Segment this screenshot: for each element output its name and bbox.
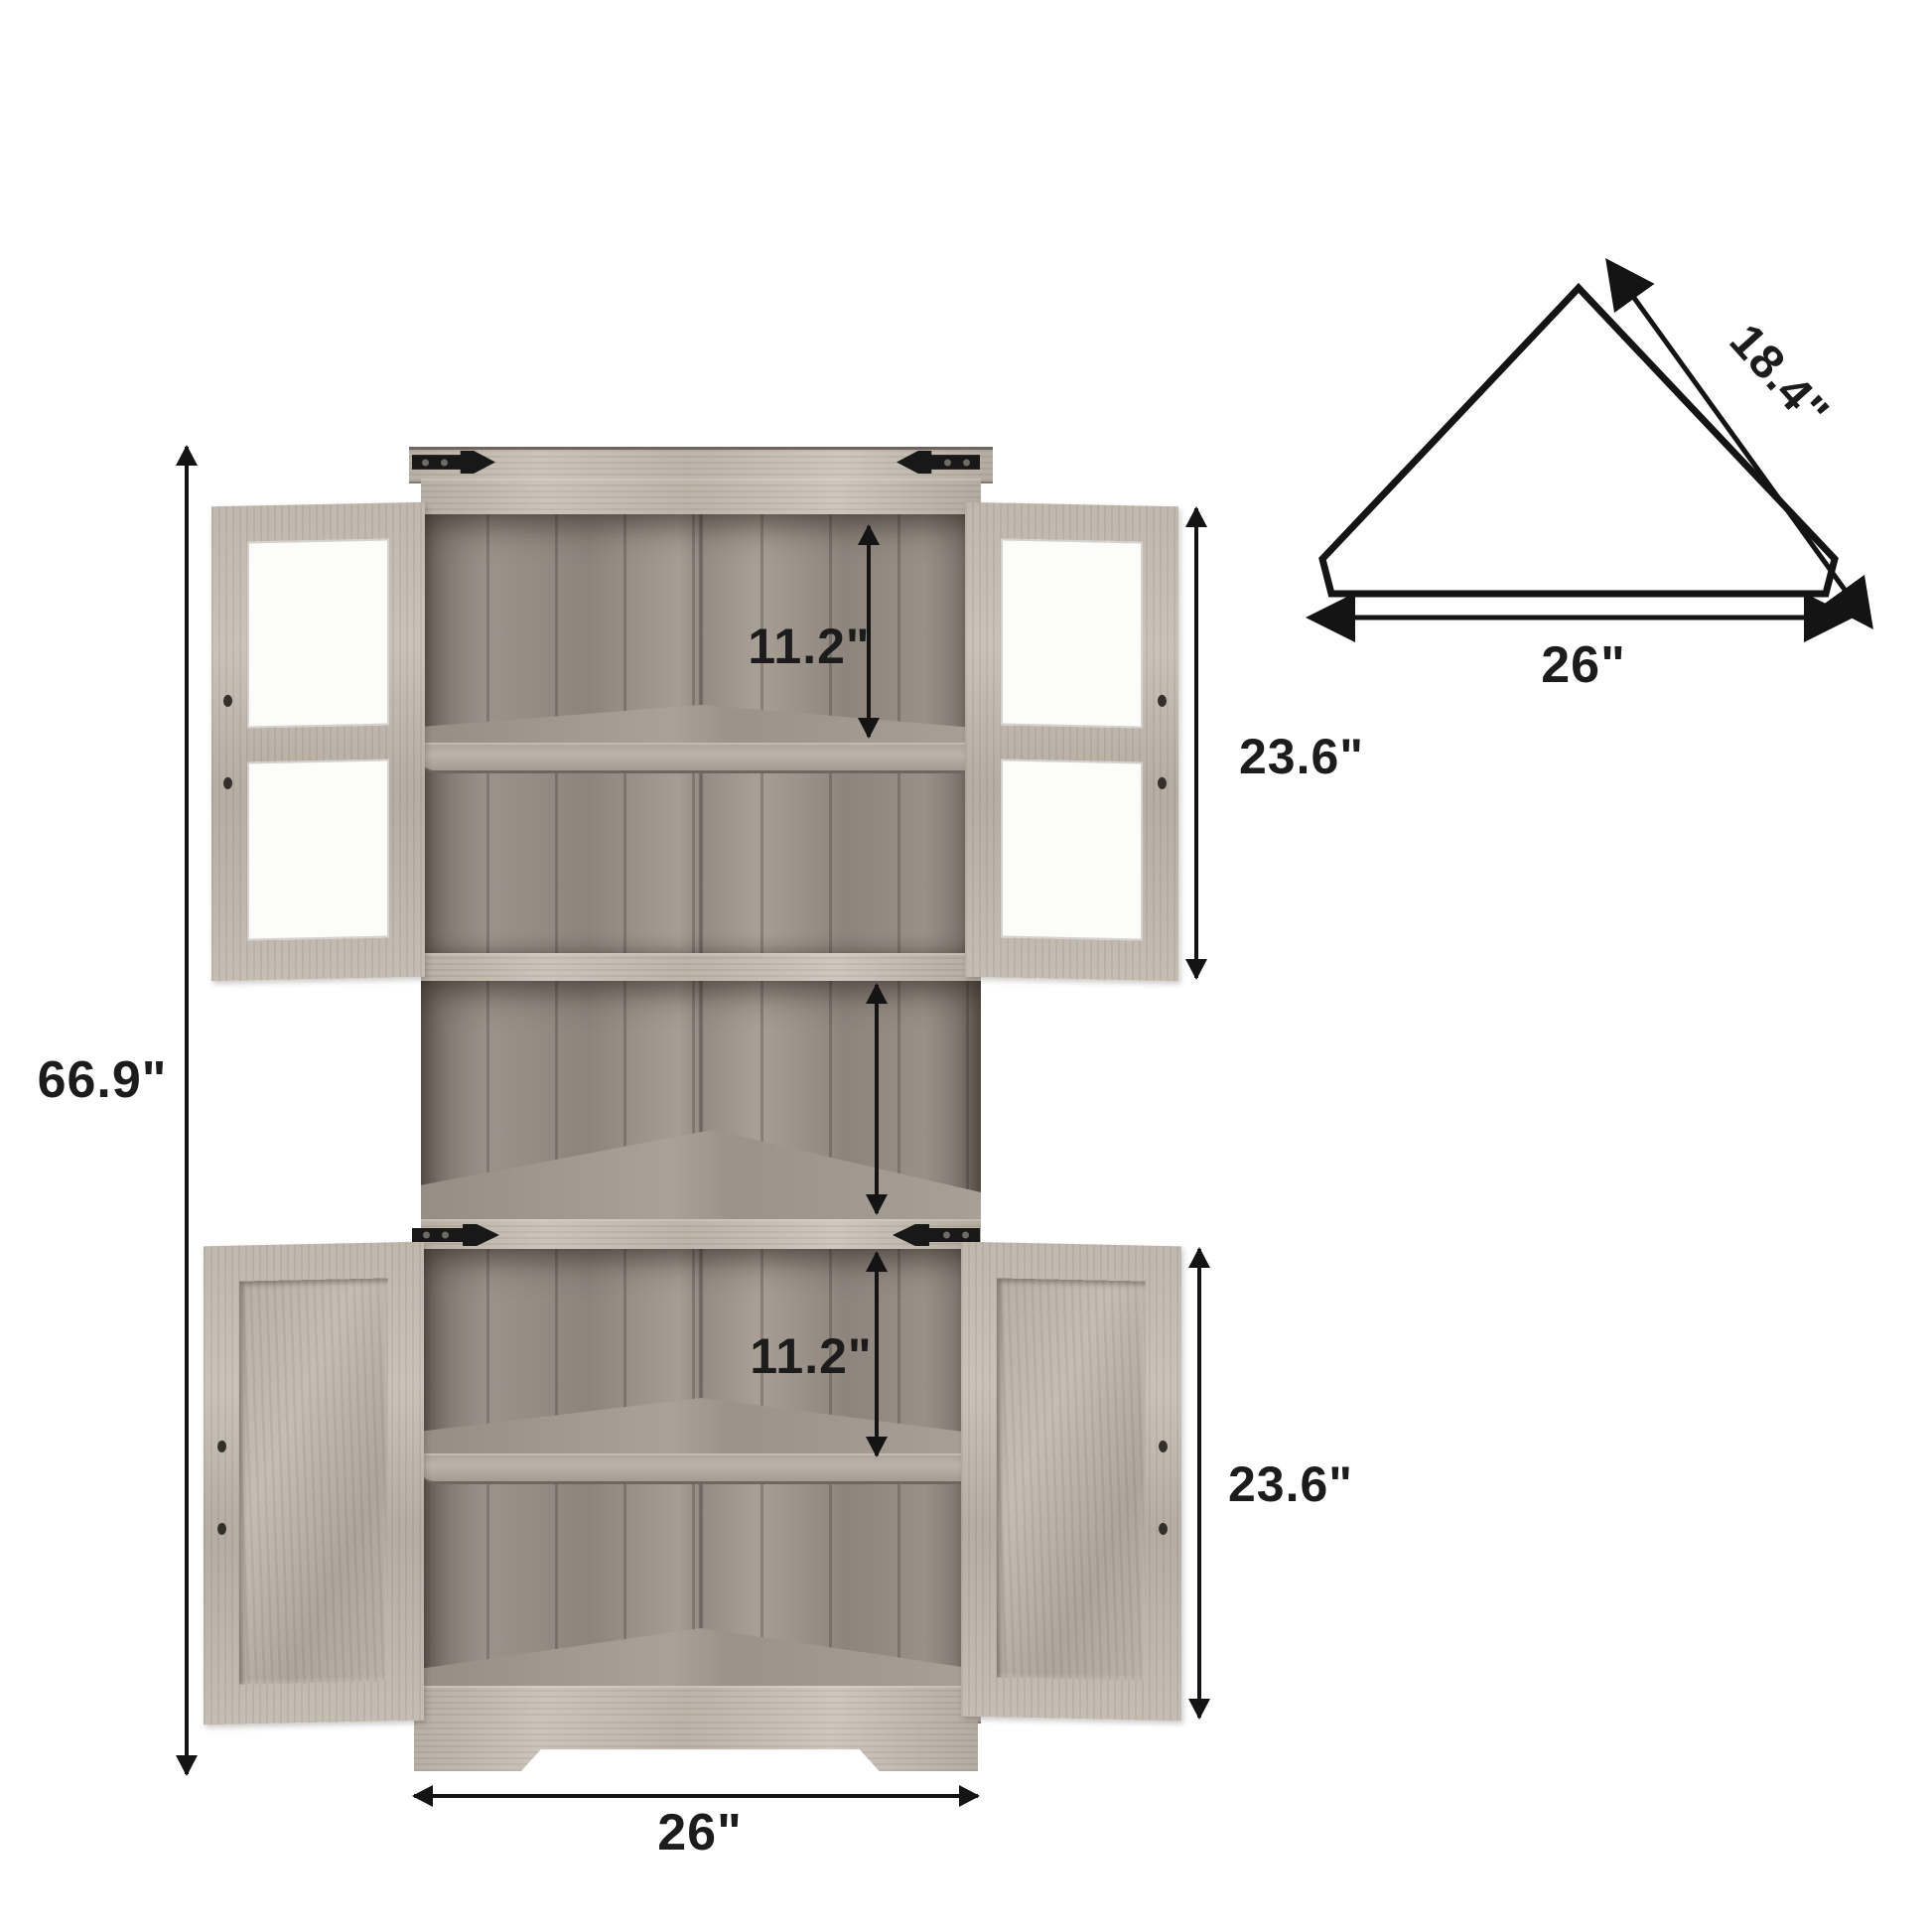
- lower-right-door: [961, 1242, 1181, 1722]
- upper-right-door: [965, 502, 1178, 982]
- upper-shelf-surface: [421, 705, 981, 743]
- lower-shelf-edge: [421, 1453, 981, 1484]
- lower-left-door: [204, 1242, 424, 1725]
- base-width-arrow: [414, 1794, 978, 1798]
- overall-height-label: 66.9": [18, 1050, 187, 1110]
- lower-gap-label: 11.2": [727, 1327, 896, 1385]
- middle-section-arrow: [875, 985, 879, 1213]
- lower-compartment: [421, 1249, 981, 1686]
- middle-shelf-surface: [421, 1130, 981, 1219]
- upper-door-height-arrow: [1194, 508, 1198, 978]
- upper-door-height-label: 23.6": [1217, 728, 1386, 785]
- base-width-label: 26": [616, 1803, 784, 1863]
- upper-shelf-edge: [421, 743, 981, 773]
- overall-height-arrow: [185, 447, 189, 1774]
- cabinet-crown-band: [421, 479, 981, 518]
- middle-compartment: [421, 981, 981, 1219]
- bottom-front-band: [421, 1686, 981, 1724]
- top-view-outline: [1281, 228, 1916, 705]
- plinth: [414, 1720, 978, 1771]
- product-dimension-diagram: 66.9" 11.2" 11.2": [0, 0, 1932, 1932]
- upper-gap-label: 11.2": [725, 618, 894, 675]
- lower-door-height-arrow: [1197, 1249, 1201, 1718]
- upper-left-door: [211, 502, 425, 982]
- bottom-floor-surface: [421, 1628, 981, 1686]
- top-view-width-label: 26": [1499, 635, 1668, 695]
- lower-door-height-label: 23.6": [1206, 1455, 1375, 1513]
- upper-compartment: [421, 514, 981, 953]
- lower-shelf-surface: [421, 1398, 981, 1453]
